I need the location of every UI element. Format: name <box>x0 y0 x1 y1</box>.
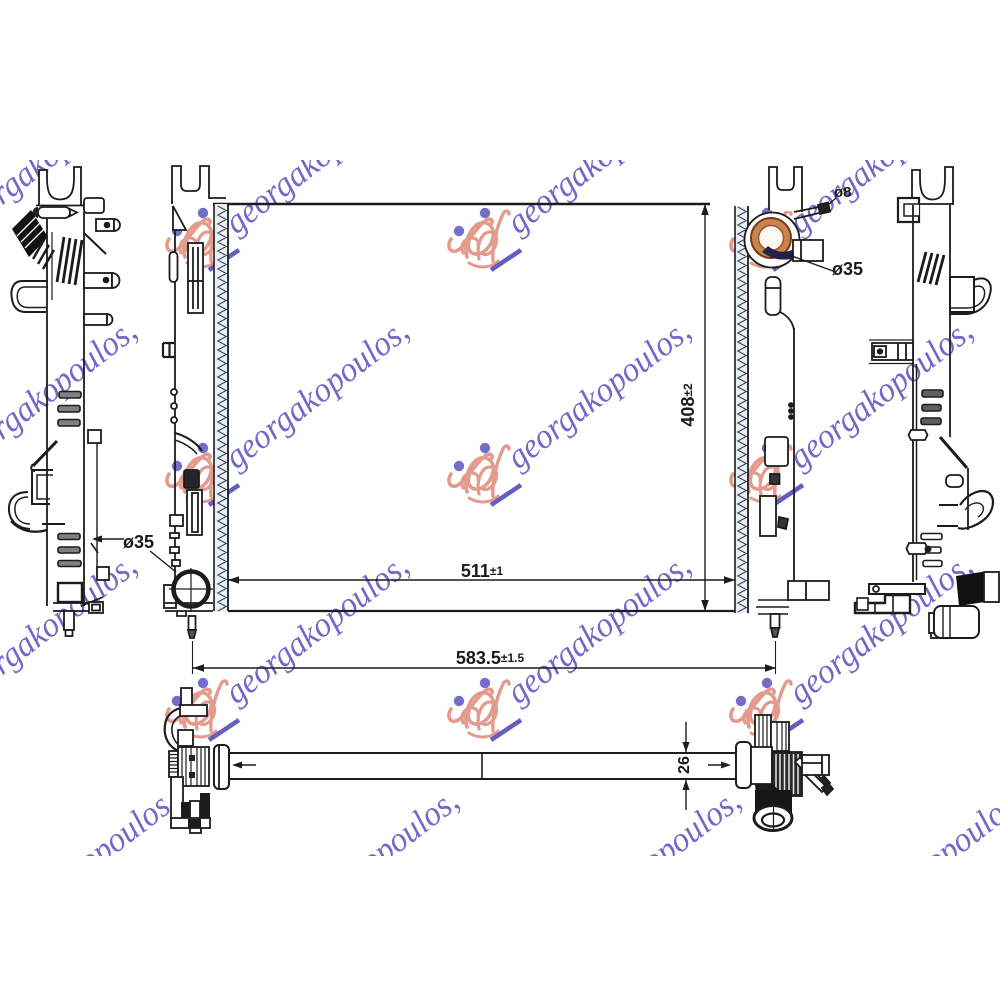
svg-text:511±1: 511±1 <box>461 561 504 581</box>
svg-text:408±2: 408±2 <box>678 383 698 427</box>
svg-text:583.5±1.5: 583.5±1.5 <box>456 648 525 668</box>
svg-text:ø8: ø8 <box>834 184 852 201</box>
svg-text:26: 26 <box>676 756 693 774</box>
svg-text:ø35: ø35 <box>123 532 154 552</box>
svg-text:ø35: ø35 <box>832 259 863 279</box>
